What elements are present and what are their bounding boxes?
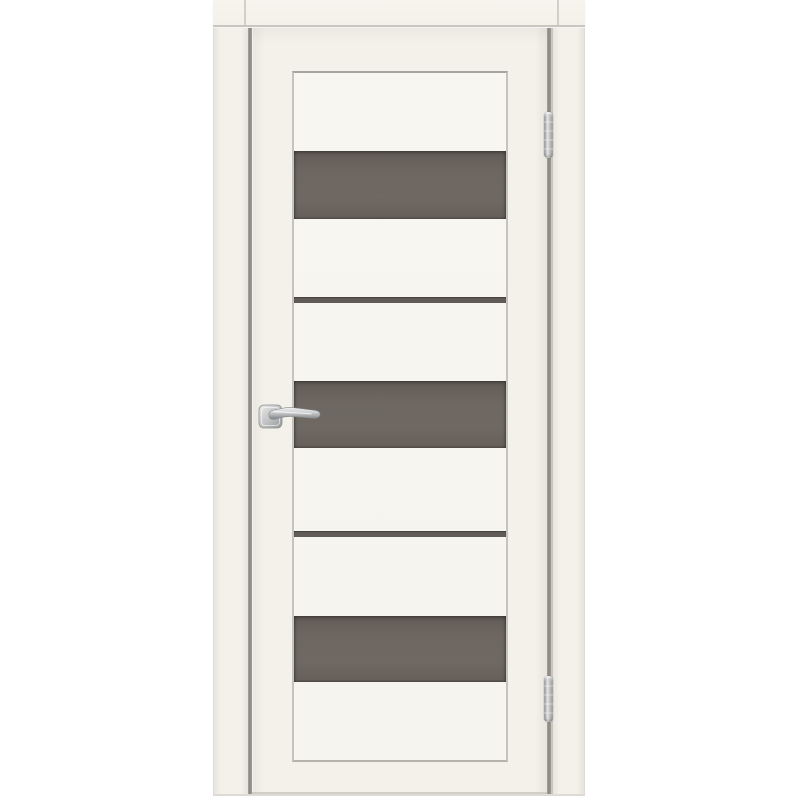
head-casing-joint-right <box>557 0 559 26</box>
frame-right-casing <box>551 28 585 796</box>
handle-lever <box>269 407 320 419</box>
product-photo-canvas <box>0 0 800 800</box>
glass-strip-2 <box>294 531 506 537</box>
door-handle-icon <box>254 398 328 434</box>
hinge-bottom-icon <box>544 676 553 722</box>
glass-insert-1 <box>294 151 506 219</box>
door-unit <box>213 0 585 796</box>
head-casing-joint-left <box>244 0 246 26</box>
glass-strip-1 <box>294 297 506 303</box>
frame-head-casing <box>213 0 585 27</box>
door-unit-bottom-edge <box>213 794 585 796</box>
hinge-top-icon <box>544 112 553 158</box>
frame-left-casing <box>213 28 248 796</box>
glass-insert-3 <box>294 616 506 682</box>
